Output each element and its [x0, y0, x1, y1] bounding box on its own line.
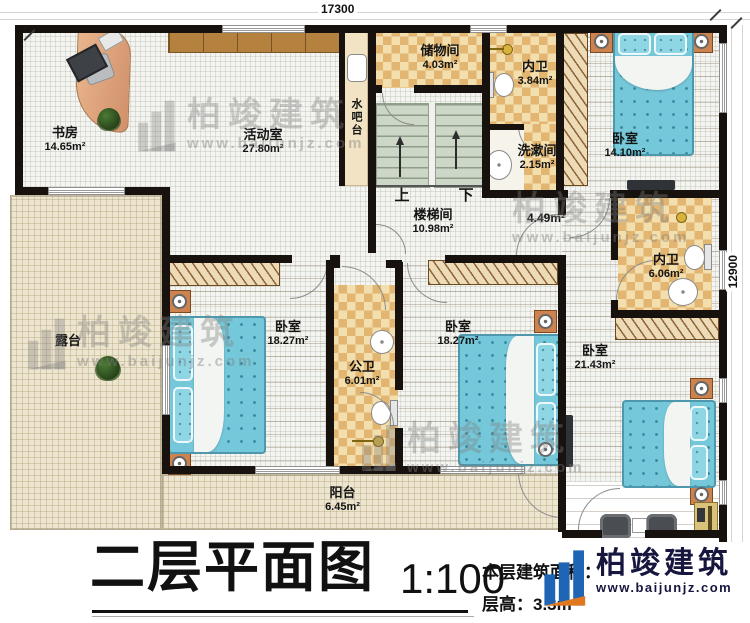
- wall: [645, 530, 727, 538]
- lamp-icon: [594, 34, 609, 49]
- room-label-public-bath: 公卫 6.01m²: [324, 360, 400, 387]
- water-bar-sink: [347, 54, 367, 82]
- pillow: [173, 387, 193, 443]
- wall: [15, 25, 222, 33]
- bed-sheet-fold: [506, 336, 534, 464]
- room-label-bedroom-bottom-right: 卧室 21.43m²: [550, 344, 640, 371]
- stairs-up-label: 上: [392, 188, 412, 205]
- wall: [611, 310, 719, 318]
- bath-sink: [370, 330, 394, 354]
- wall: [414, 85, 486, 93]
- scale-label: 1:100: [400, 558, 505, 600]
- room-label-water-bar: 水吧台: [348, 98, 364, 137]
- wall: [339, 25, 345, 186]
- bath-sink: [668, 278, 698, 306]
- stair-arrow-up-stem: [399, 145, 401, 177]
- room-label-stairwell: 楼梯间 10.98m²: [388, 208, 478, 235]
- window: [719, 43, 727, 113]
- dresser-item: [697, 508, 705, 522]
- wall: [162, 255, 292, 263]
- corridor-area-label: 4.49m²: [516, 212, 576, 225]
- wall: [305, 25, 470, 33]
- company-logo-icon: [540, 548, 592, 608]
- wall: [482, 190, 568, 198]
- wall: [340, 466, 440, 474]
- frame-line-top-1: [0, 12, 750, 13]
- bench-mat: [627, 180, 675, 190]
- bed-sheet-fold: [194, 318, 224, 452]
- lamp-icon: [172, 294, 187, 309]
- stair-arrow-down-icon: [452, 130, 460, 139]
- window: [440, 466, 525, 474]
- plumbing-pipe: [352, 440, 374, 442]
- pillow: [173, 325, 193, 381]
- dimension-right: 12900: [726, 252, 740, 291]
- company-logo: 柏竣建筑 www.baijunjz.com: [540, 548, 732, 608]
- wall: [368, 25, 376, 253]
- wall: [719, 25, 727, 43]
- wall: [125, 187, 170, 195]
- wall: [507, 25, 727, 33]
- frame-line-right-2: [742, 25, 743, 542]
- lamp-icon: [538, 314, 553, 329]
- pillow: [690, 445, 708, 480]
- stair-arrow-down-stem: [455, 139, 457, 169]
- wall: [610, 190, 727, 198]
- wall: [611, 198, 618, 260]
- company-logo-website: www.baijunjz.com: [596, 580, 732, 595]
- room-label-washroom: 洗漱间 2.15m²: [494, 144, 580, 171]
- stairs-down-label: 下: [456, 188, 476, 205]
- stair-arrow-up-icon: [396, 136, 404, 145]
- bed-sheet-fold: [664, 402, 690, 486]
- dresser-item: [708, 506, 712, 530]
- lamp-icon: [538, 442, 553, 457]
- floor-plan-canvas: 17300 12900: [0, 0, 750, 623]
- room-label-study: 书房 14.65m²: [20, 126, 110, 153]
- room-label-activity: 活动室 27.80m²: [208, 128, 318, 155]
- bed: [622, 400, 716, 488]
- window: [255, 466, 340, 474]
- title-underline: [92, 610, 468, 613]
- room-label-balcony: 阳台 6.45m²: [300, 486, 385, 513]
- window: [719, 378, 727, 403]
- wall: [482, 124, 524, 130]
- frame-line-top-2: [0, 19, 750, 20]
- pillow: [690, 406, 708, 441]
- wall: [562, 530, 602, 538]
- dimension-top: 17300: [318, 2, 357, 16]
- wall: [558, 255, 566, 532]
- wall: [15, 25, 23, 195]
- pillow: [618, 33, 651, 55]
- lamp-icon: [694, 381, 709, 396]
- lamp-icon: [694, 487, 709, 502]
- window: [222, 25, 305, 33]
- stair-flight-right: [434, 103, 488, 188]
- plant-icon: [96, 356, 120, 380]
- window: [470, 25, 507, 33]
- stair-divider: [428, 103, 436, 186]
- room-label-storage: 储物间 4.03m²: [395, 44, 485, 71]
- room-label-bedroom-left: 卧室 18.27m²: [243, 320, 333, 347]
- title-underline-thin: [92, 616, 474, 617]
- plumbing-valve-icon: [502, 44, 513, 55]
- window: [719, 480, 727, 505]
- wardrobe: [167, 260, 280, 286]
- window: [162, 345, 170, 415]
- wall: [611, 300, 618, 310]
- pillow: [654, 33, 687, 55]
- room-label-bedroom-top-right: 卧室 14.10m²: [580, 132, 670, 159]
- room-label-terrace: 露台: [38, 334, 98, 349]
- room-label-bath-right: 内卫 6.06m²: [626, 253, 706, 280]
- company-logo-name: 柏竣建筑: [596, 548, 732, 580]
- wall: [162, 195, 170, 345]
- window: [48, 187, 125, 195]
- plumbing-valve-icon: [373, 436, 384, 447]
- wall: [719, 403, 727, 480]
- lamp-icon: [694, 34, 709, 49]
- floor-terrace: [10, 195, 162, 530]
- room-label-bedroom-mid: 卧室 18.27m²: [413, 320, 503, 347]
- wall: [15, 187, 48, 195]
- wall: [368, 85, 382, 93]
- wall: [445, 255, 560, 263]
- page-title: 二层平面图: [90, 540, 375, 595]
- wall: [162, 466, 255, 474]
- wall: [719, 290, 727, 378]
- plumbing-valve-icon: [676, 212, 687, 223]
- room-label-bath-top: 内卫 3.84m²: [495, 60, 575, 87]
- wall: [719, 113, 727, 250]
- wardrobe: [428, 260, 558, 285]
- wardrobe: [615, 316, 719, 340]
